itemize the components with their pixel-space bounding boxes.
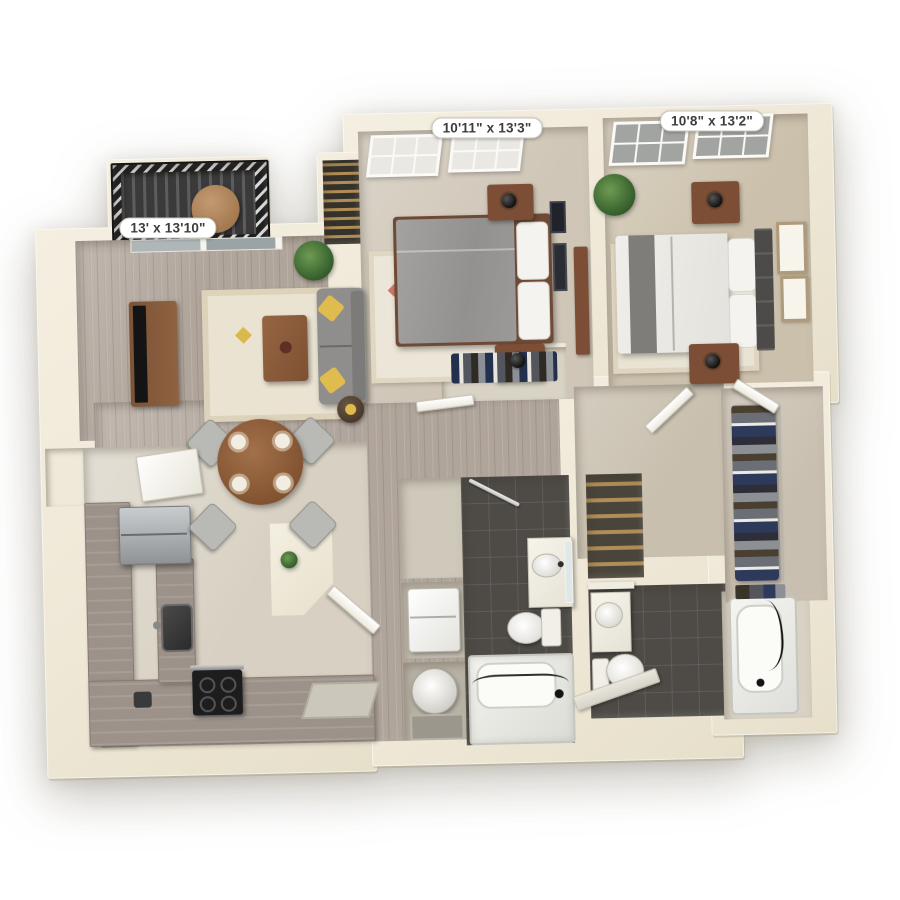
window-pane (497, 151, 520, 169)
window-pane (451, 152, 474, 170)
toaster (134, 691, 152, 707)
bathroom2-shelf (588, 582, 634, 590)
dimension-label-living-room: 13' x 13'10" (119, 218, 216, 239)
bathroom1-mirror (564, 541, 573, 603)
floor-plan-canvas: { "floor_plan": { "type": "3d-top-down-a… (0, 0, 900, 900)
dimension-label-bedroom1: 10'11" x 13'3" (432, 118, 543, 139)
window-pane (394, 137, 417, 155)
window-pane (417, 137, 440, 155)
floor-plan (27, 91, 842, 799)
sofa-back-cushion (350, 291, 365, 401)
bedroom2-headboard (754, 228, 775, 350)
window-pane (612, 144, 636, 163)
bedroom2-dresser (574, 246, 590, 354)
bedroom2-pillow (727, 238, 756, 293)
drain-pan (410, 713, 465, 740)
window-pane (744, 136, 768, 155)
folded-clothes-stack (735, 584, 785, 599)
linen-closet (586, 473, 644, 578)
window-pane (474, 152, 497, 170)
bedroom2-wall-art (776, 222, 807, 275)
window-pane (638, 124, 662, 143)
kitchen-sink (161, 604, 194, 653)
shower-curtain-rod (472, 673, 568, 693)
bedroom2-gray-throw (628, 235, 657, 354)
bedroom2-pillow (729, 294, 758, 349)
window-pane (614, 124, 638, 143)
entry-door-mat (301, 681, 380, 719)
tv (133, 306, 148, 403)
bedroom1-wall-art (552, 243, 567, 291)
dimension-label-bedroom2: 10'8" x 13'2" (660, 111, 764, 132)
bedroom1-duvet (396, 217, 517, 344)
bedroom1-closet-clothes (451, 351, 558, 383)
bedroom1-pillow (517, 281, 550, 340)
stove (192, 669, 243, 715)
window-pane (636, 144, 660, 163)
bedroom1-pillow (516, 221, 549, 280)
window-pane (660, 143, 684, 162)
bathroom1-faucet (558, 561, 564, 567)
washer (407, 587, 460, 652)
window-pane (720, 137, 744, 156)
window-pane (696, 137, 720, 156)
bedroom1-window (366, 134, 443, 178)
window-pane (372, 138, 395, 156)
pantry-nook (45, 448, 84, 507)
hall-closet (323, 160, 361, 245)
cabinet-door-open (136, 448, 204, 502)
walk-in-hanging-clothes (731, 404, 779, 581)
window-pane (415, 156, 438, 174)
window-pane (392, 156, 415, 174)
bedroom2-wall-art (780, 275, 809, 322)
bathroom1-toilet-tank (541, 608, 562, 646)
window-pane (369, 157, 392, 175)
utility-closet (399, 477, 463, 578)
bedroom1-wall-art (550, 201, 567, 233)
